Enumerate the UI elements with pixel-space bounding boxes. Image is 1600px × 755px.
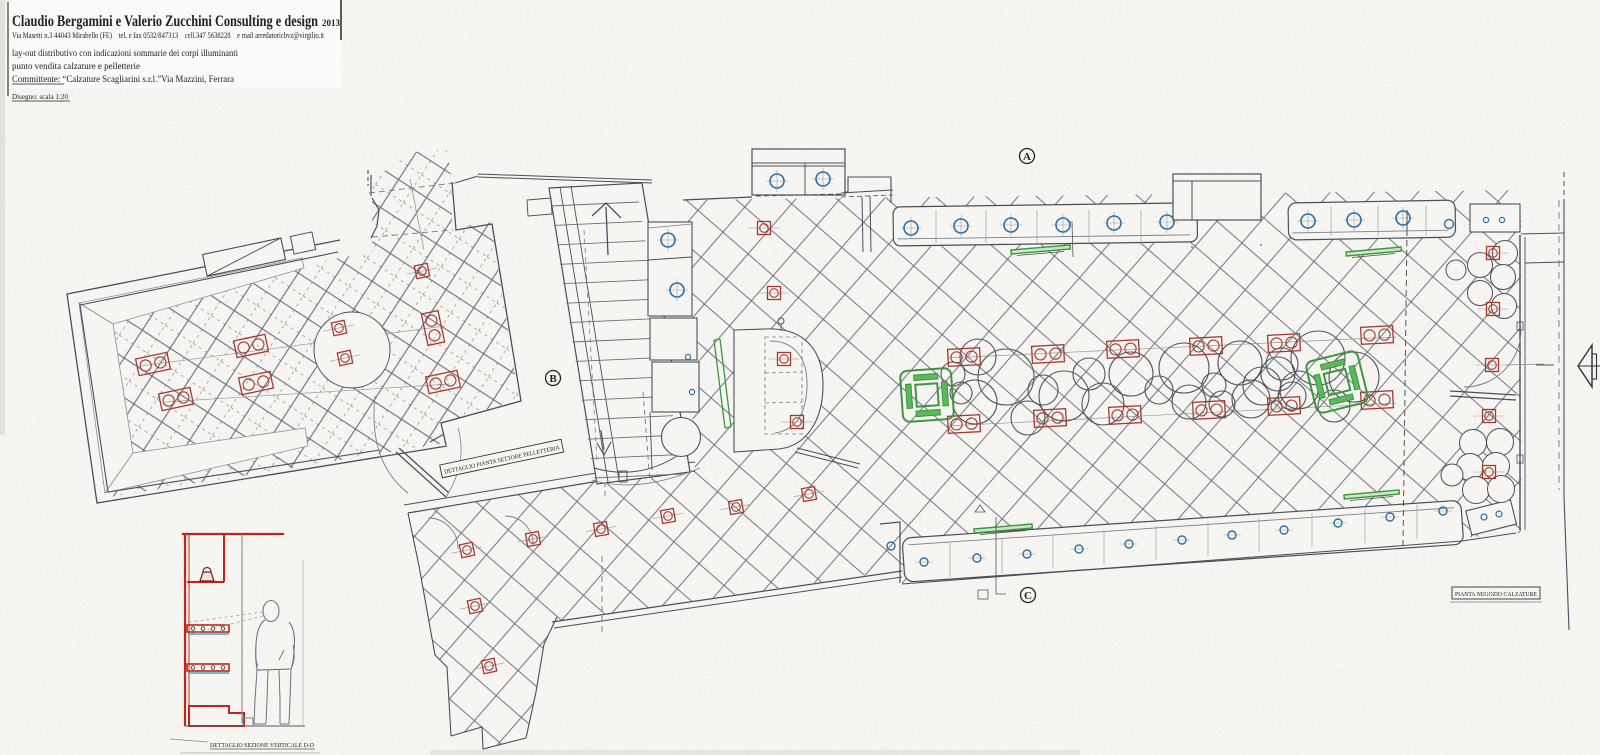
svg-text:punto vendita calzature e pell: punto vendita calzature e pelletterie [12, 62, 140, 72]
svg-text:Committente: “Calzature Scagli: Committente: “Calzature Scagliarini s.r.… [12, 75, 235, 85]
svg-text:PIANTA NEGOZIO CALZATURE: PIANTA NEGOZIO CALZATURE [1455, 592, 1537, 598]
svg-text:Claudio Bergamini e Valerio Zu: Claudio Bergamini e Valerio Zucchini Con… [12, 13, 318, 30]
svg-text:lay-out distributivo con indic: lay-out distributivo con indicazioni som… [12, 49, 238, 59]
svg-text:Via Masetti n.3 44043 Mirabell: Via Masetti n.3 44043 Mirabello (FE) tel… [12, 31, 325, 40]
svg-text:C: C [1024, 590, 1032, 602]
svg-text:DETTAGLIO SEZIONE VERTICALE D-: DETTAGLIO SEZIONE VERTICALE D-D [210, 742, 314, 749]
svg-text:2013: 2013 [322, 18, 341, 28]
svg-text:A: A [1023, 151, 1031, 163]
svg-text:B: B [549, 373, 557, 385]
svg-text:Disegno: scala 1:20: Disegno: scala 1:20 [12, 92, 68, 101]
